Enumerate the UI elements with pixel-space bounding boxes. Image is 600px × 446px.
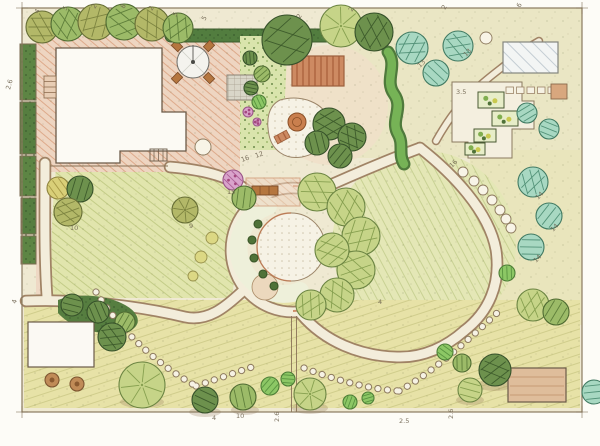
landscape-plan-figure: 452825522262.6410916121543.5131316141414… xyxy=(0,0,600,446)
fire-pit xyxy=(288,113,306,131)
tree-dark-green xyxy=(243,51,257,65)
tree-conifer-teal xyxy=(539,119,559,139)
tree-dark-green xyxy=(355,13,393,51)
shrub-ball-yellow xyxy=(188,271,198,281)
tree-planter xyxy=(70,377,84,391)
tree-green xyxy=(232,186,256,210)
tree-dark-green xyxy=(87,301,109,323)
plan-number-label: 2.5 xyxy=(399,417,409,425)
tree-light-green xyxy=(119,362,165,408)
shrub-ball-white xyxy=(487,195,497,205)
tree-light-green xyxy=(296,290,326,320)
tree-conifer-teal xyxy=(518,167,548,197)
tree-dark-green xyxy=(61,294,83,316)
shrub-ball-white xyxy=(501,214,511,224)
garden-plan-drawing: 452825522262.6410916121543.5131316141414… xyxy=(0,0,600,446)
shrub-ball-yellow xyxy=(206,232,218,244)
garage-building xyxy=(28,322,94,367)
tree-planter xyxy=(45,373,59,387)
plan-number-label: 2.6 xyxy=(273,412,281,422)
tree-light-green xyxy=(315,233,349,267)
tree-conifer-teal xyxy=(536,203,562,229)
raised-vegetable-bed xyxy=(465,143,485,155)
tree-light-green xyxy=(294,378,326,410)
plan-number-label: 2.6 xyxy=(447,409,455,419)
plant-sprig xyxy=(254,220,262,228)
tree-green xyxy=(230,384,256,410)
shrub-ball-white xyxy=(469,176,479,186)
shrub-ball-white xyxy=(195,139,211,155)
shrub-bright xyxy=(362,392,374,404)
shrub-bright xyxy=(252,95,266,109)
stepping-stone-squares xyxy=(506,87,556,94)
tree-conifer-teal xyxy=(582,380,600,404)
shrub-bright xyxy=(281,372,295,386)
tree-dark-green xyxy=(98,323,126,351)
tree-green xyxy=(453,354,471,372)
flowering-shrub-pink xyxy=(243,107,253,117)
plant-sprig xyxy=(250,254,258,262)
plan-number-label: 9 xyxy=(189,222,193,230)
tree-olive xyxy=(172,197,198,223)
tree-dark-green xyxy=(328,144,352,168)
tree-conifer-teal xyxy=(396,32,428,64)
shrub-ball-white xyxy=(480,32,492,44)
shrub-ball-white xyxy=(506,223,516,233)
raised-vegetable-bed xyxy=(492,111,518,126)
tree-green xyxy=(254,66,270,82)
plan-number-label: 4 xyxy=(378,298,382,306)
compost-plot xyxy=(551,84,567,99)
shrub-ball-yellow xyxy=(195,251,207,263)
tree-yellow xyxy=(47,177,69,199)
shrub-bright xyxy=(343,395,357,409)
raised-vegetable-bed xyxy=(474,129,496,142)
plant-sprig xyxy=(248,236,256,244)
flowering-shrub-pink xyxy=(253,118,261,126)
tree-dark-green xyxy=(244,81,258,95)
plan-number-label: 4 xyxy=(212,414,216,422)
plan-number-label: 15 xyxy=(227,188,235,196)
raised-vegetable-bed xyxy=(478,92,504,108)
tree-dark-green xyxy=(262,15,312,65)
tree-conifer-teal xyxy=(517,103,537,123)
tree-green xyxy=(543,299,569,325)
shrub-ball-white xyxy=(495,205,505,215)
tree-dark-green xyxy=(479,354,511,386)
shrub-bright xyxy=(437,344,453,360)
shrub-bright xyxy=(261,377,279,395)
plan-number-label: 3.5 xyxy=(456,88,466,96)
shrub-ball-white xyxy=(478,185,488,195)
greenhouse xyxy=(503,42,558,73)
tree-dark-green xyxy=(192,387,218,413)
plant-sprig xyxy=(259,270,267,278)
tree-dark-green xyxy=(305,131,329,155)
garden-bench xyxy=(252,186,278,195)
tree-light-green xyxy=(458,378,482,402)
tree-olive xyxy=(54,198,82,226)
plan-number-label: 10 xyxy=(236,412,244,420)
patio-table-set xyxy=(171,40,214,83)
garden-shed xyxy=(508,368,566,402)
shrub-bright xyxy=(499,265,515,281)
plan-number-label: 10 xyxy=(70,224,78,232)
shrub-ball-white xyxy=(458,167,468,177)
plant-sprig xyxy=(270,282,278,290)
